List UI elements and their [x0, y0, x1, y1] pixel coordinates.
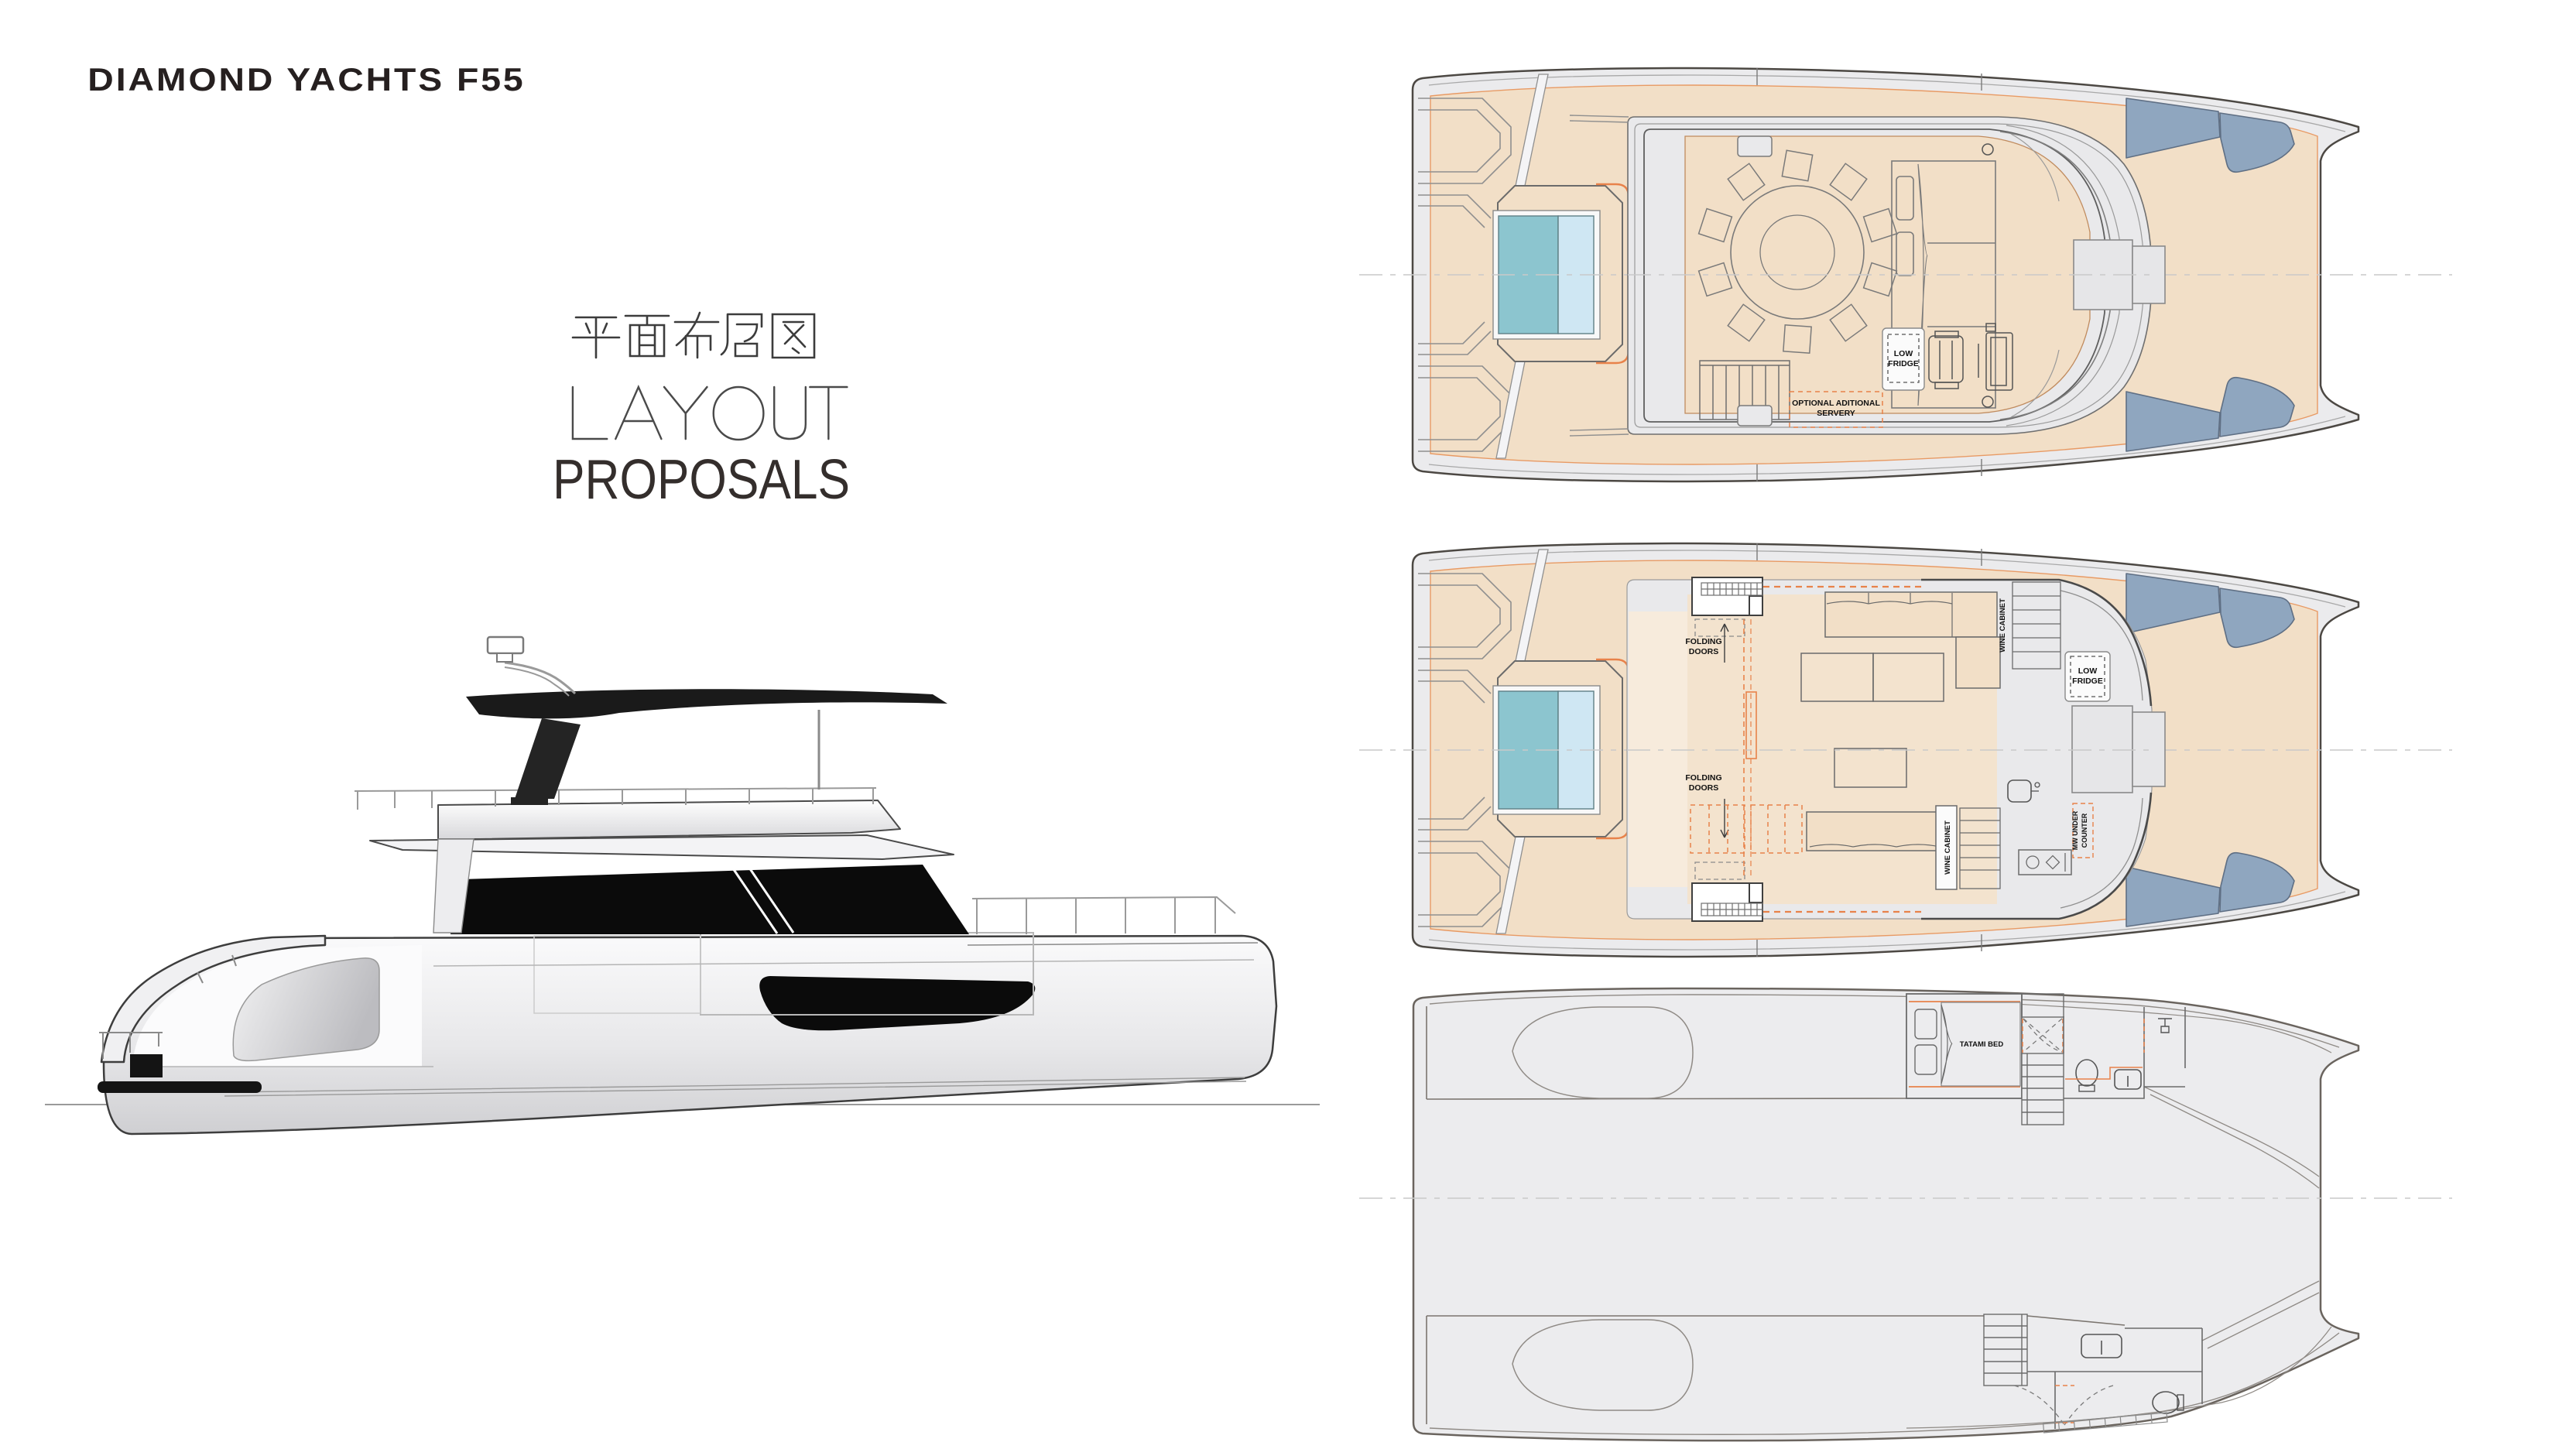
svg-text:SERVERY: SERVERY [1817, 409, 1855, 418]
svg-text:PROPOSALS: PROPOSALS [553, 449, 850, 511]
svg-text:DOORS: DOORS [1689, 783, 1719, 793]
svg-text:LOW: LOW [2078, 666, 2098, 676]
svg-text:FOLDING: FOLDING [1685, 637, 1721, 646]
svg-text:FOLDING: FOLDING [1685, 773, 1721, 783]
svg-text:MW UNDER: MW UNDER [2071, 810, 2079, 850]
svg-text:FRIDGE: FRIDGE [1888, 359, 1919, 368]
svg-text:DIAMOND YACHTS F55: DIAMOND YACHTS F55 [87, 62, 526, 98]
svg-text:DOORS: DOORS [1689, 647, 1719, 656]
svg-text:WINE CABINET: WINE CABINET [1999, 598, 2007, 653]
svg-text:FRIDGE: FRIDGE [2072, 677, 2103, 686]
svg-text:TATAMI BED: TATAMI BED [1960, 1040, 2004, 1049]
svg-text:LOW: LOW [1894, 349, 1913, 358]
svg-text:OPTIONAL ADITIONAL: OPTIONAL ADITIONAL [1792, 399, 1880, 408]
svg-text:WINE CABINET: WINE CABINET [1944, 820, 1952, 875]
svg-text:COUNTER: COUNTER [2081, 813, 2088, 848]
